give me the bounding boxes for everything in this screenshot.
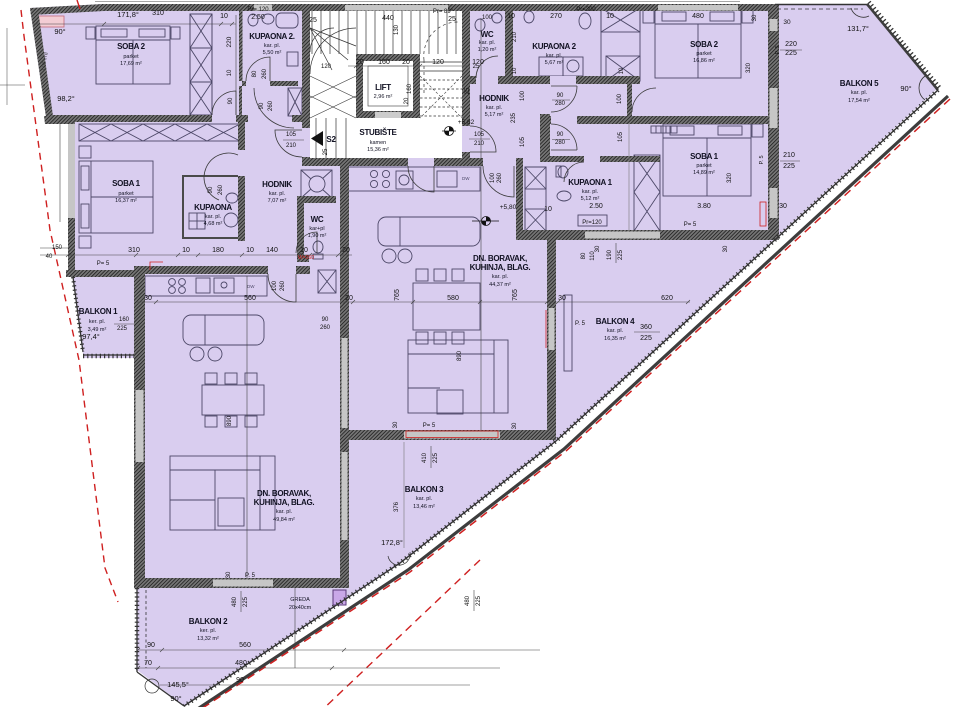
- svg-text:10: 10: [544, 206, 552, 213]
- svg-text:172,8°: 172,8°: [381, 538, 403, 547]
- svg-text:150: 150: [52, 245, 63, 251]
- svg-text:40: 40: [46, 254, 53, 260]
- svg-text:120: 120: [432, 59, 444, 66]
- svg-text:HODNIK: HODNIK: [479, 94, 509, 103]
- svg-text:171,8°: 171,8°: [117, 10, 139, 19]
- svg-text:W=260: W=260: [298, 255, 314, 261]
- svg-text:16,35 m²: 16,35 m²: [604, 336, 626, 342]
- svg-text:280: 280: [555, 101, 566, 107]
- svg-text:20: 20: [342, 247, 350, 254]
- svg-text:BALKON 1: BALKON 1: [79, 307, 118, 316]
- svg-text:105: 105: [618, 131, 624, 142]
- svg-text:90: 90: [322, 317, 329, 323]
- svg-text:100: 100: [520, 90, 526, 101]
- svg-text:480: 480: [232, 596, 238, 607]
- svg-text:30: 30: [512, 422, 518, 429]
- svg-text:kar. pl.: kar. pl.: [607, 328, 624, 334]
- svg-text:120: 120: [472, 59, 484, 66]
- svg-text:KUPAONA 2: KUPAONA 2: [532, 42, 576, 51]
- svg-text:890: 890: [457, 350, 463, 361]
- svg-text:kamen: kamen: [370, 140, 387, 146]
- svg-text:210: 210: [783, 152, 795, 159]
- svg-text:+5,82: +5,82: [458, 119, 475, 126]
- svg-text:410: 410: [422, 452, 428, 463]
- svg-text:235: 235: [511, 112, 517, 123]
- svg-text:P. 5: P. 5: [759, 155, 765, 164]
- svg-text:90: 90: [557, 93, 564, 99]
- svg-text:25: 25: [465, 87, 471, 94]
- svg-text:2.50: 2.50: [251, 14, 265, 21]
- svg-text:SOBA 2: SOBA 2: [690, 40, 719, 49]
- svg-text:90°: 90°: [170, 694, 181, 703]
- svg-text:5,12 m²: 5,12 m²: [581, 196, 600, 202]
- svg-text:kar. pl.: kar. pl.: [851, 90, 868, 96]
- svg-text:105: 105: [520, 136, 526, 147]
- svg-text:KUPAONA 1: KUPAONA 1: [568, 178, 612, 187]
- svg-text:S2: S2: [326, 135, 336, 144]
- svg-text:parket: parket: [696, 163, 712, 169]
- svg-text:90°: 90°: [900, 84, 911, 93]
- svg-text:30: 30: [558, 295, 566, 302]
- svg-text:SOBA 2: SOBA 2: [117, 42, 146, 51]
- svg-text:80: 80: [581, 252, 587, 259]
- svg-text:kar. pl.: kar. pl.: [269, 191, 286, 197]
- svg-text:kar. pl.: kar. pl.: [276, 509, 293, 515]
- svg-text:220: 220: [226, 36, 233, 47]
- svg-text:P. 5: P. 5: [575, 321, 586, 327]
- svg-text:90: 90: [228, 97, 234, 104]
- svg-text:100: 100: [272, 280, 278, 291]
- svg-text:10: 10: [300, 247, 308, 254]
- svg-text:225: 225: [785, 50, 797, 57]
- svg-text:Pr= 120: Pr= 120: [247, 7, 269, 13]
- svg-text:kar. pl.: kar. pl.: [416, 496, 433, 502]
- svg-text:160: 160: [119, 317, 130, 323]
- svg-text:560: 560: [244, 295, 256, 302]
- svg-text:49,84 m²: 49,84 m²: [273, 517, 295, 523]
- svg-text:90°: 90°: [54, 27, 65, 36]
- svg-text:180: 180: [212, 247, 224, 254]
- svg-text:90: 90: [557, 132, 564, 138]
- svg-text:13,46 m²: 13,46 m²: [413, 504, 435, 510]
- svg-text:100: 100: [617, 93, 623, 104]
- svg-text:SOBA 1: SOBA 1: [112, 179, 141, 188]
- svg-text:2,96 m²: 2,96 m²: [374, 94, 393, 100]
- svg-text:2.50: 2.50: [589, 203, 603, 210]
- svg-text:P. 5: P. 5: [245, 573, 256, 579]
- svg-text:7,07 m²: 7,07 m²: [268, 198, 287, 204]
- svg-text:20: 20: [402, 59, 410, 66]
- svg-text:P. 5: P. 5: [775, 45, 781, 54]
- svg-text:210: 210: [286, 143, 297, 149]
- svg-text:260: 260: [262, 68, 268, 79]
- svg-text:105: 105: [474, 132, 485, 138]
- svg-text:270: 270: [550, 13, 562, 20]
- svg-text:20x40cm: 20x40cm: [289, 605, 312, 611]
- svg-text:kar. pl.: kar. pl.: [264, 43, 281, 49]
- svg-text:130: 130: [394, 24, 400, 35]
- svg-text:kar. pl.: kar. pl.: [492, 274, 509, 280]
- svg-text:3.80: 3.80: [697, 203, 711, 210]
- svg-text:Pr=120: Pr=120: [582, 220, 602, 226]
- svg-text:BALKON 2: BALKON 2: [189, 617, 228, 626]
- svg-text:97,4°: 97,4°: [82, 332, 100, 341]
- svg-text:25: 25: [448, 16, 456, 23]
- svg-text:SOBA 1: SOBA 1: [690, 152, 719, 161]
- svg-text:STUBIŠTE: STUBIŠTE: [359, 128, 397, 137]
- svg-text:WC: WC: [481, 30, 494, 39]
- svg-text:225: 225: [117, 326, 128, 332]
- svg-text:KUPAONA: KUPAONA: [194, 203, 232, 212]
- svg-text:P= 5: P= 5: [684, 222, 697, 228]
- svg-text:KUHINJA, BLAG.: KUHINJA, BLAG.: [254, 498, 315, 507]
- svg-text:1,20 m²: 1,20 m²: [478, 47, 497, 53]
- svg-text:90: 90: [236, 677, 244, 684]
- svg-text:210: 210: [512, 31, 518, 42]
- svg-text:parket: parket: [118, 191, 134, 197]
- svg-text:480: 480: [465, 595, 471, 606]
- svg-text:kar. pl.: kar. pl.: [546, 53, 563, 59]
- svg-text:90: 90: [208, 186, 214, 193]
- svg-text:30: 30: [595, 245, 601, 252]
- svg-text:16,86 m²: 16,86 m²: [693, 58, 715, 64]
- svg-text:225: 225: [433, 452, 439, 463]
- svg-text:160: 160: [378, 59, 390, 66]
- svg-text:260: 260: [268, 100, 274, 111]
- svg-text:KUHINJA, BLAG.: KUHINJA, BLAG.: [470, 263, 531, 272]
- svg-text:30: 30: [783, 19, 791, 26]
- svg-text:P= 5: P= 5: [97, 261, 110, 267]
- svg-text:DN. BORAVAK,: DN. BORAVAK,: [257, 489, 311, 498]
- svg-text:280: 280: [555, 140, 566, 146]
- svg-text:30: 30: [723, 245, 729, 252]
- svg-text:20: 20: [356, 59, 364, 66]
- svg-text:10: 10: [182, 247, 190, 254]
- svg-text:Pr=300: Pr=300: [576, 7, 596, 13]
- svg-text:320: 320: [746, 62, 752, 73]
- svg-text:BALKON 4: BALKON 4: [596, 317, 635, 326]
- svg-text:10: 10: [246, 247, 254, 254]
- svg-text:98,2°: 98,2°: [57, 94, 75, 103]
- svg-text:kar. pl.: kar. pl.: [205, 214, 222, 220]
- svg-text:30: 30: [226, 571, 232, 578]
- svg-text:225: 225: [243, 596, 249, 607]
- svg-text:10: 10: [227, 69, 233, 76]
- svg-text:320: 320: [727, 172, 733, 183]
- svg-text:30: 30: [752, 14, 758, 21]
- svg-text:kar+pl: kar+pl: [309, 226, 324, 232]
- svg-text:WC: WC: [311, 215, 324, 224]
- svg-text:360: 360: [640, 324, 652, 331]
- svg-text:44,37 m²: 44,37 m²: [489, 282, 511, 288]
- svg-text:30: 30: [393, 421, 399, 428]
- svg-text:25: 25: [309, 17, 317, 24]
- svg-text:30: 30: [779, 203, 787, 210]
- svg-text:DW: DW: [462, 176, 470, 181]
- svg-text:765: 765: [512, 289, 519, 301]
- svg-text:5,50 m²: 5,50 m²: [263, 50, 282, 56]
- svg-text:70: 70: [144, 660, 152, 667]
- svg-text:440: 440: [382, 15, 394, 22]
- svg-text:BALKON 5: BALKON 5: [840, 79, 879, 88]
- svg-text:90: 90: [147, 642, 155, 649]
- svg-text:ker. pl.: ker. pl.: [200, 628, 217, 634]
- svg-text:10: 10: [220, 13, 228, 20]
- svg-text:10: 10: [606, 13, 614, 20]
- svg-text:480: 480: [235, 660, 247, 667]
- svg-text:HODNIK: HODNIK: [262, 180, 292, 189]
- svg-text:80: 80: [252, 70, 258, 77]
- svg-text:105: 105: [286, 132, 297, 138]
- svg-text:260: 260: [320, 325, 331, 331]
- svg-text:Pr= 89°: Pr= 89°: [433, 9, 454, 15]
- svg-text:140: 140: [266, 247, 278, 254]
- svg-text:20: 20: [404, 97, 410, 104]
- svg-text:100: 100: [490, 172, 496, 183]
- svg-text:190: 190: [607, 249, 613, 260]
- svg-text:260: 260: [218, 184, 224, 195]
- svg-text:376: 376: [394, 501, 400, 512]
- svg-text:145,5°: 145,5°: [167, 680, 189, 689]
- svg-text:30: 30: [144, 295, 152, 302]
- svg-text:90: 90: [259, 102, 265, 109]
- svg-text:10: 10: [512, 67, 518, 74]
- svg-text:KUPAONA 2.: KUPAONA 2.: [249, 32, 295, 41]
- svg-text:560: 560: [239, 642, 251, 649]
- svg-text:260: 260: [280, 280, 286, 291]
- svg-text:14,89 m²: 14,89 m²: [693, 170, 715, 176]
- svg-text:260: 260: [497, 172, 503, 183]
- svg-text:+5,80: +5,80: [500, 204, 517, 211]
- svg-text:DW: DW: [247, 284, 255, 289]
- svg-text:parket: parket: [123, 54, 139, 60]
- svg-text:225: 225: [618, 249, 624, 260]
- svg-text:10: 10: [619, 67, 625, 74]
- svg-text:480: 480: [692, 13, 704, 20]
- svg-text:20: 20: [345, 295, 353, 302]
- svg-text:parket: parket: [696, 51, 712, 57]
- svg-text:310: 310: [152, 10, 164, 17]
- svg-text:BALKON 3: BALKON 3: [405, 485, 444, 494]
- svg-text:5,17 m²: 5,17 m²: [485, 112, 504, 118]
- svg-text:P= 5: P= 5: [423, 423, 436, 429]
- svg-text:765: 765: [394, 289, 401, 301]
- svg-text:620: 620: [661, 295, 673, 302]
- svg-text:210: 210: [474, 141, 485, 147]
- svg-text:890: 890: [227, 415, 233, 426]
- svg-text:225: 225: [783, 163, 795, 170]
- svg-text:25: 25: [323, 148, 329, 155]
- svg-text:10: 10: [507, 13, 515, 20]
- svg-text:17,69 m²: 17,69 m²: [120, 61, 142, 67]
- svg-text:100: 100: [482, 15, 493, 21]
- svg-text:4,68 m²: 4,68 m²: [204, 221, 223, 227]
- svg-text:131,7°: 131,7°: [847, 24, 869, 33]
- svg-text:580: 580: [447, 295, 459, 302]
- svg-text:160: 160: [407, 83, 413, 94]
- svg-text:GREDA: GREDA: [290, 597, 310, 603]
- svg-text:5,67 m²: 5,67 m²: [545, 60, 564, 66]
- svg-text:225: 225: [640, 335, 652, 342]
- svg-text:kar. pl.: kar. pl.: [582, 189, 599, 195]
- svg-text:310: 310: [128, 247, 140, 254]
- svg-text:13,32 m²: 13,32 m²: [197, 636, 219, 642]
- svg-text:17,54 m²: 17,54 m²: [848, 98, 870, 104]
- svg-text:120: 120: [321, 64, 332, 70]
- svg-text:225: 225: [476, 595, 482, 606]
- svg-text:16,37 m²: 16,37 m²: [115, 198, 137, 204]
- svg-text:ker. pl.: ker. pl.: [89, 319, 106, 325]
- svg-text:kar. pl.: kar. pl.: [486, 105, 503, 111]
- svg-text:LIFT: LIFT: [375, 83, 391, 92]
- svg-text:15,36 m²: 15,36 m²: [367, 147, 389, 153]
- svg-text:1,90 m²: 1,90 m²: [308, 233, 327, 239]
- svg-text:220: 220: [785, 41, 797, 48]
- svg-text:kar. pl.: kar. pl.: [479, 40, 496, 46]
